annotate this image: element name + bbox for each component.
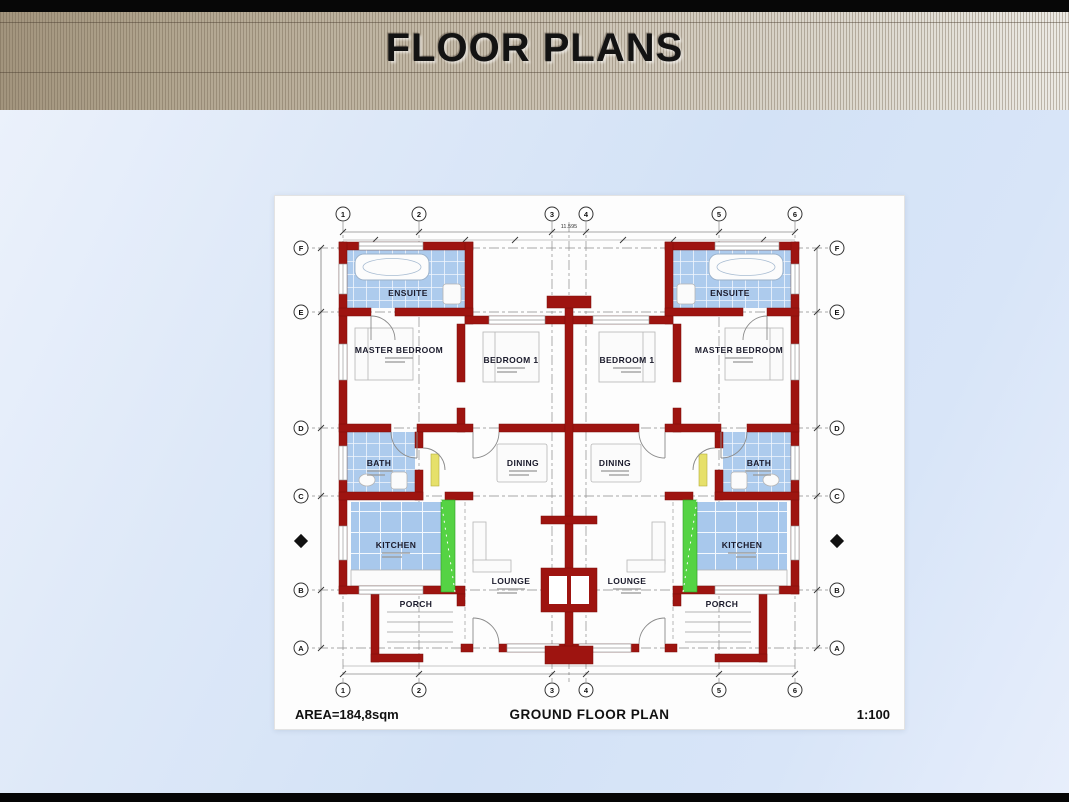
svg-text:5: 5 (717, 686, 721, 695)
svg-text:B: B (298, 586, 304, 595)
svg-text:A: A (834, 644, 840, 653)
svg-text:A: A (298, 644, 304, 653)
svg-text:6: 6 (793, 686, 797, 695)
svg-text:C: C (834, 492, 840, 501)
svg-text:2: 2 (417, 686, 421, 695)
svg-text:1: 1 (341, 210, 345, 219)
svg-text:1: 1 (341, 686, 345, 695)
grid-bubbles-bottom: 1 2 3 4 5 6 (336, 683, 802, 697)
floor-plan-drawing: 11.595 1 2 3 4 5 6 1 2 3 4 5 6 F E D C B… (275, 196, 906, 731)
room-label-lounge-right: LOUNGE (608, 576, 647, 586)
slide-header: FLOOR PLANS (0, 12, 1069, 110)
room-label-bedroom1-left: BEDROOM 1 (483, 355, 538, 365)
floor-plan-panel: 11.595 1 2 3 4 5 6 1 2 3 4 5 6 F E D C B… (274, 195, 905, 730)
section-marker-diamond (830, 534, 844, 548)
room-label-kitchen-right: KITCHEN (722, 540, 763, 550)
room-label-dining-right: DINING (599, 458, 631, 468)
header-rule-bottom (0, 72, 1069, 73)
svg-text:5: 5 (717, 210, 721, 219)
section-marker-diamond (294, 534, 308, 548)
room-label-master-right: MASTER BEDROOM (695, 345, 783, 355)
header-rule-top (0, 22, 1069, 23)
right-unit (565, 242, 799, 662)
svg-text:3: 3 (550, 686, 554, 695)
room-label-master-left: MASTER BEDROOM (355, 345, 443, 355)
svg-text:F: F (299, 244, 304, 253)
room-label-lounge-left: LOUNGE (492, 576, 531, 586)
central-core (541, 296, 597, 664)
room-label-bath-right: BATH (747, 458, 772, 468)
room-label-porch-right: PORCH (706, 599, 739, 609)
top-black-bar (0, 0, 1069, 12)
room-label-ensuite-right: ENSUITE (710, 288, 750, 298)
svg-text:E: E (298, 308, 303, 317)
svg-text:D: D (298, 424, 304, 433)
overall-dimension: 11.595 (561, 224, 577, 230)
svg-text:D: D (834, 424, 840, 433)
slide-title: FLOOR PLANS (0, 26, 1069, 71)
room-label-dining-left: DINING (507, 458, 539, 468)
svg-text:3: 3 (550, 210, 554, 219)
room-label-ensuite-left: ENSUITE (388, 288, 428, 298)
grid-bubbles-top: 1 2 3 4 5 6 (336, 207, 802, 221)
svg-text:E: E (834, 308, 839, 317)
scale-label: 1:100 (857, 707, 890, 722)
room-label-bedroom1-right: BEDROOM 1 (599, 355, 654, 365)
svg-text:2: 2 (417, 210, 421, 219)
drawing-title: GROUND FLOOR PLAN (275, 707, 904, 722)
left-unit (339, 242, 573, 662)
svg-text:C: C (298, 492, 304, 501)
room-label-porch-left: PORCH (400, 599, 433, 609)
bottom-black-bar (0, 793, 1069, 802)
grid-bubbles-left: F E D C B A (294, 241, 308, 655)
room-label-bath-left: BATH (367, 458, 392, 468)
svg-text:6: 6 (793, 210, 797, 219)
svg-text:B: B (834, 586, 840, 595)
room-label-kitchen-left: KITCHEN (376, 540, 417, 550)
grid-bubbles-right: F E D C B A (830, 241, 844, 655)
svg-text:F: F (835, 244, 840, 253)
